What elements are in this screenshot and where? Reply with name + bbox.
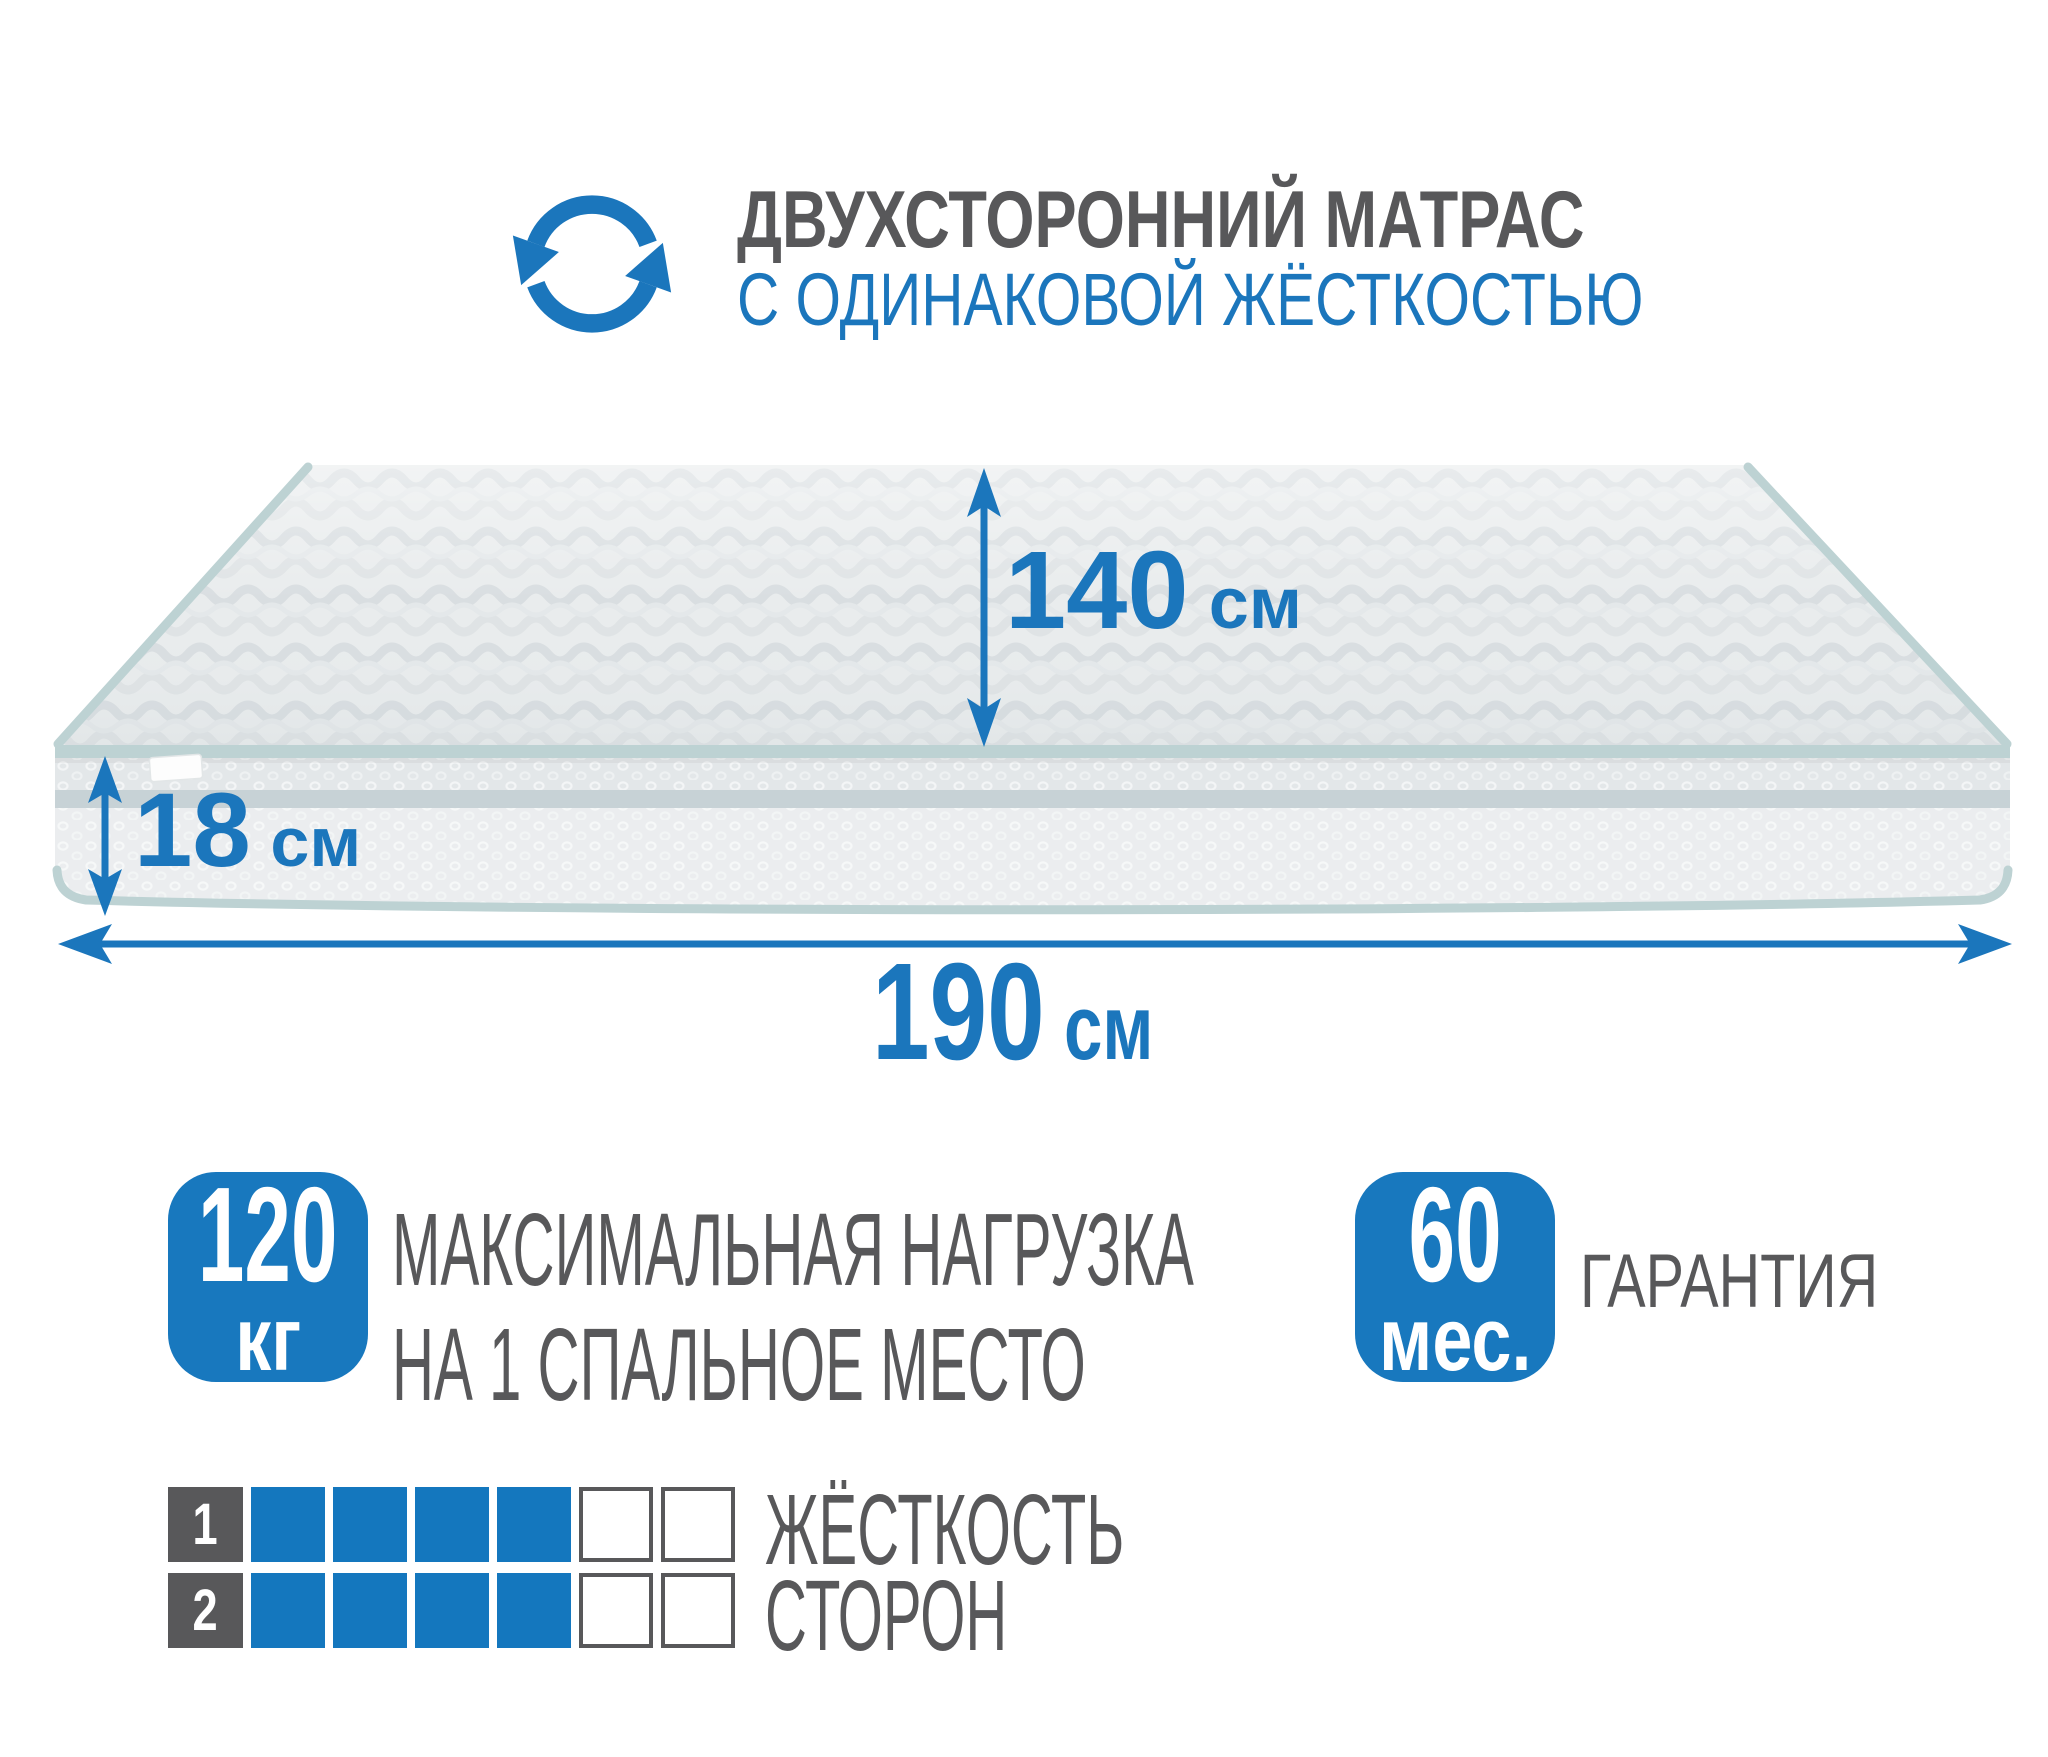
depth-unit: см: [1209, 564, 1302, 644]
firmness-cell-filled: [415, 1487, 489, 1562]
dimension-label-length: 190см: [872, 943, 1153, 1081]
firmness-cell-empty: [661, 1573, 735, 1648]
firmness-cell-filled: [333, 1573, 407, 1648]
firmness-cell-empty: [579, 1573, 653, 1648]
firmness-cell-filled: [251, 1573, 325, 1648]
firmness-side-number: 2: [168, 1573, 243, 1648]
max-load-value: 120: [198, 1173, 338, 1297]
piping-top-front: [40, 745, 2030, 758]
firmness-label-line2: СТОРОН: [765, 1566, 1007, 1666]
firmness-side-number: 1: [168, 1487, 243, 1562]
dimension-label-height: 18см: [134, 778, 361, 883]
firmness-rows: 12: [168, 1487, 735, 1659]
warranty-badge: 60 мес.: [1355, 1172, 1555, 1382]
firmness-row: 1: [168, 1487, 735, 1562]
max-load-badge: 120 кг: [168, 1172, 368, 1382]
depth-value: 140: [1005, 529, 1189, 652]
height-unit: см: [270, 803, 361, 881]
warranty-label: ГАРАНТИЯ: [1580, 1244, 1878, 1320]
max-load-unit: кг: [235, 1300, 301, 1381]
firmness-cell-filled: [415, 1573, 489, 1648]
max-load-label-line1: МАКСИМАЛЬНАЯ НАГРУЗКА: [392, 1198, 1194, 1301]
firmness-cell-empty: [661, 1487, 735, 1562]
firmness-cell-filled: [497, 1573, 571, 1648]
firmness-row: 2: [168, 1573, 735, 1648]
firmness-cell-filled: [333, 1487, 407, 1562]
height-value: 18: [134, 772, 251, 889]
warranty-value: 60: [1408, 1173, 1501, 1297]
firmness-cell-filled: [497, 1487, 571, 1562]
mattress-infographic: ДВУХСТОРОННИЙ МАТРАС С ОДИНАКОВОЙ ЖЁСТКО…: [0, 0, 2048, 1757]
length-unit: см: [1064, 977, 1153, 1079]
dimension-label-depth: 140см: [1005, 536, 1302, 646]
firmness-cell-filled: [251, 1487, 325, 1562]
max-load-label-line2: НА 1 СПАЛЬНОЕ МЕСТО: [392, 1313, 1086, 1416]
length-value: 190: [872, 935, 1045, 1089]
warranty-unit: мес.: [1379, 1300, 1531, 1381]
firmness-cell-empty: [579, 1487, 653, 1562]
